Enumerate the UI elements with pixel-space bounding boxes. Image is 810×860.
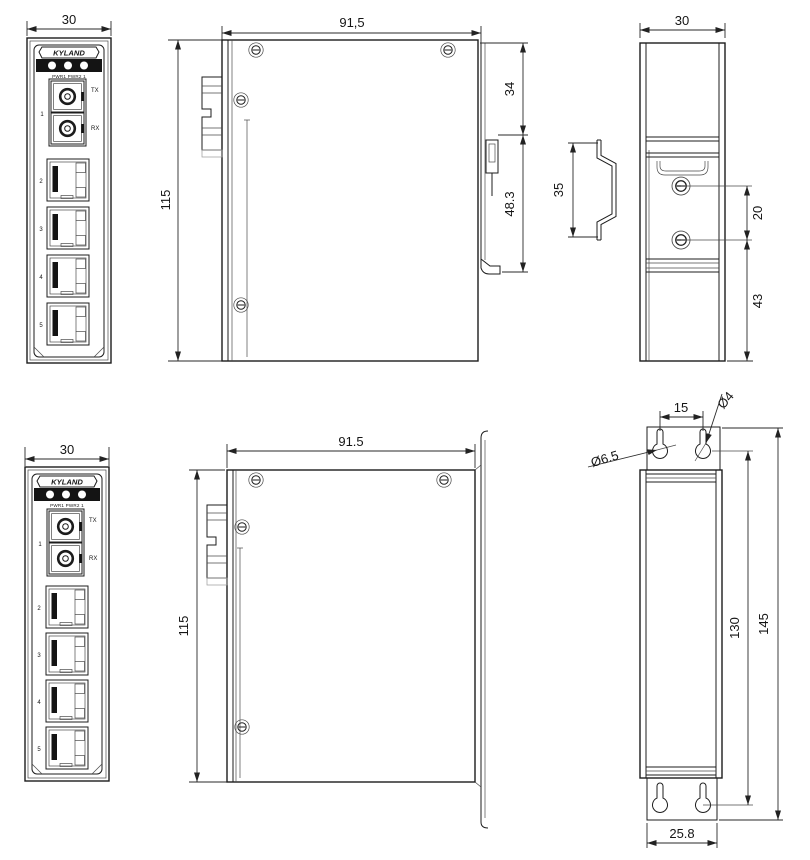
housing-outline — [640, 43, 725, 361]
brand-logo: KYLAND — [51, 478, 83, 487]
rx-label: RX — [91, 126, 99, 132]
din-rail-profile: 35 — [551, 140, 616, 240]
tx-label: TX — [89, 518, 97, 524]
view-side-top: 91,5 115 — [158, 15, 528, 361]
dim-label: 30 — [675, 13, 689, 28]
dim-label: 25.8 — [669, 826, 694, 841]
dim-din-clip-48-3: 48.3 — [502, 135, 528, 272]
dim-label: 30 — [62, 12, 76, 27]
dim-label: 43 — [750, 294, 765, 308]
dim-label: 34 — [502, 82, 517, 96]
led-pwr2 — [62, 491, 70, 499]
rail-outer-contour — [597, 140, 612, 240]
rail-inner-contour — [601, 140, 616, 240]
dim-height-115: 115 — [158, 40, 224, 361]
port1-label: 1 — [40, 112, 44, 118]
dim-label: 115 — [176, 616, 191, 637]
led-port1 — [80, 62, 88, 70]
dim-screw-spacing-20: 20 — [747, 186, 765, 240]
dim-label: 30 — [60, 442, 74, 457]
view-rear-top: 30 20 43 — [640, 13, 765, 361]
led-port1 — [78, 491, 86, 499]
port2-label: 2 — [37, 606, 41, 612]
dim-label: Ø6.5 — [589, 447, 620, 470]
port1-label: 1 — [38, 542, 42, 548]
dim-label: 91,5 — [339, 15, 364, 30]
view-front-bottom: 30 KYLAND PWR1 PWR2 1 TX RX 1 2 — [25, 442, 109, 781]
brand-banner: KYLAND — [37, 476, 97, 487]
tx-label: TX — [91, 88, 99, 94]
housing-outline — [25, 467, 109, 781]
dim-height-115: 115 — [176, 470, 240, 782]
port3-label: 3 — [39, 227, 43, 233]
housing-inner-line — [28, 470, 106, 778]
brand-logo: KYLAND — [53, 49, 85, 58]
view-front-top: 30 KYLAND PWR1 PWR2 1 TX RX 1 2 — [27, 12, 111, 363]
din-clip-side — [481, 43, 500, 274]
fiber-port-block: TX RX 1 — [38, 509, 97, 576]
dim-label: 20 — [750, 206, 765, 220]
dim-bottom-offset-43: 43 — [727, 240, 765, 361]
wall-bracket-edge — [475, 431, 488, 828]
led-strip — [36, 59, 102, 72]
housing-outline — [640, 470, 722, 778]
led-labels: PWR1 PWR2 1 — [50, 503, 84, 508]
fiber-port-block: TX RX 1 — [40, 79, 99, 146]
led-strip — [34, 488, 100, 501]
dim-width-91-5: 91.5 — [227, 434, 475, 468]
terminal-block-profile — [207, 505, 227, 585]
led-labels: PWR1 PWR2 1 — [52, 74, 86, 79]
dim-label: 145 — [756, 613, 771, 635]
port3-label: 3 — [37, 653, 41, 659]
dim-label: 130 — [727, 617, 742, 639]
din-rail-seats — [646, 137, 719, 272]
drawing-canvas: 30 KYLAND PWR1 PWR2 1 TX RX 1 2 — [0, 0, 810, 860]
port5-label: 5 — [39, 323, 43, 329]
port2-label: 2 — [39, 179, 43, 185]
housing-outline — [222, 40, 478, 361]
led-pwr1 — [46, 491, 54, 499]
view-rear-bottom: 15 Ø4 Ø6.5 130 — [588, 389, 783, 848]
terminal-block-profile — [202, 77, 222, 157]
led-pwr1 — [48, 62, 56, 70]
port4-label: 4 — [39, 275, 43, 281]
view-side-bottom: 91.5 115 — [176, 431, 488, 828]
dim-hole-span-130: 130 — [703, 451, 753, 805]
dim-plate-width-25-8: 25.8 — [647, 823, 717, 848]
dim-din-offset-34: 34 — [480, 43, 528, 135]
port5-label: 5 — [37, 747, 41, 753]
dim-width-30: 30 — [27, 12, 111, 36]
callout-small-hole: Ø4 — [695, 389, 737, 461]
dim-slot-spacing-15: 15 — [660, 400, 703, 431]
dim-width-30: 30 — [640, 13, 725, 38]
port4-label: 4 — [37, 700, 41, 706]
dim-label: 15 — [674, 400, 688, 415]
dimension-drawing-sheet: 30 KYLAND PWR1 PWR2 1 TX RX 1 2 — [0, 0, 810, 860]
dim-label: 35 — [551, 183, 566, 197]
led-pwr2 — [64, 62, 72, 70]
dim-width-30: 30 — [25, 442, 109, 466]
dim-width-91-5: 91,5 — [222, 15, 481, 43]
dim-label: 115 — [158, 190, 173, 211]
housing-outline — [227, 470, 475, 782]
dim-label: 48.3 — [502, 191, 517, 216]
rx-label: RX — [89, 556, 97, 562]
brand-banner: KYLAND — [39, 47, 99, 58]
dim-label: 91.5 — [338, 434, 363, 449]
